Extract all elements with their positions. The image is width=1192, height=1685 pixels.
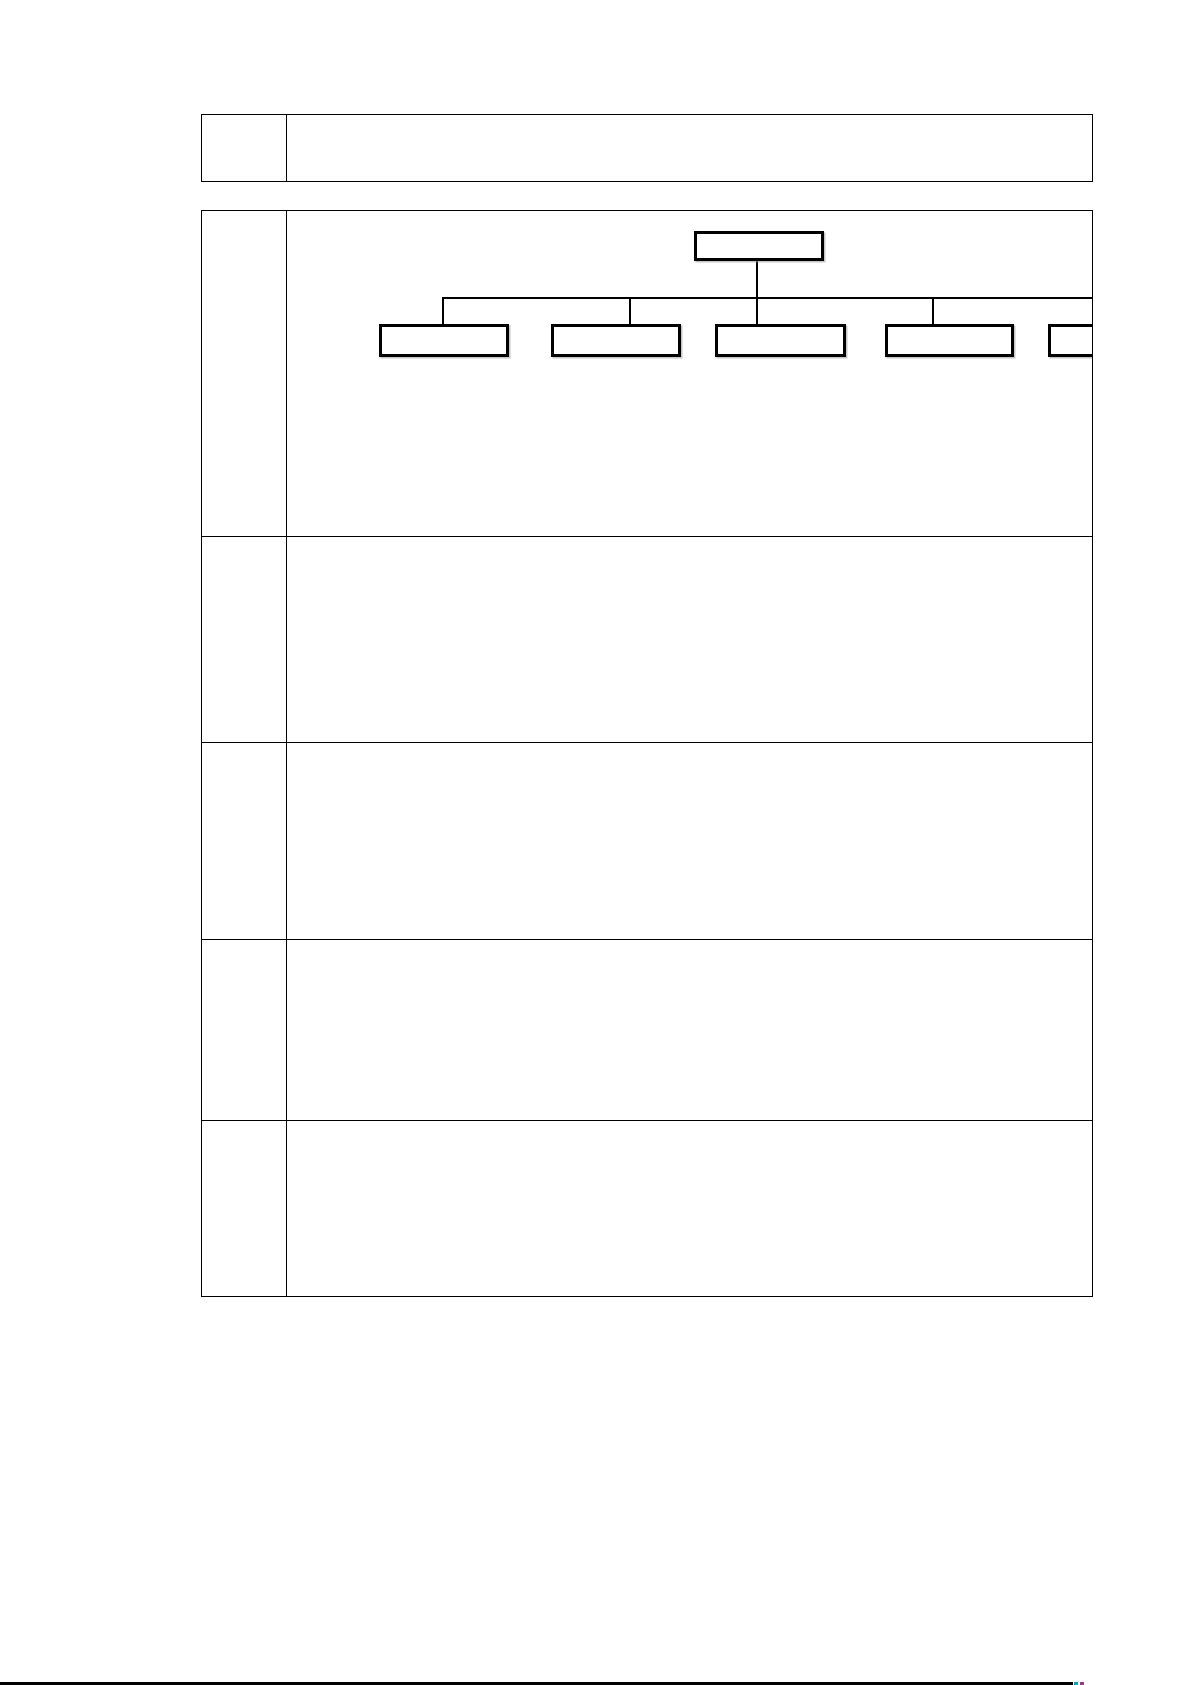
table-cell [202, 940, 287, 1120]
org-chart-drop-connector [442, 297, 444, 325]
table-row [202, 115, 1092, 181]
org-chart-child-box [715, 324, 846, 357]
header-table [201, 114, 1093, 182]
org-chart-drop-connector [756, 297, 758, 325]
table-cell [202, 743, 287, 939]
org-chart-child-box [1048, 324, 1092, 357]
table-cell [202, 1121, 287, 1296]
document-page [0, 0, 1192, 1685]
table-cell [202, 211, 287, 536]
table-cell [287, 537, 1092, 742]
table-cell [202, 537, 287, 742]
org-chart [287, 211, 1092, 536]
org-chart-child-box [885, 324, 1014, 357]
main-table [201, 210, 1093, 1297]
table-cell [287, 211, 1092, 536]
org-chart-stem-connector [756, 261, 758, 299]
table-row [202, 537, 1092, 743]
org-chart-drop-connector [932, 297, 934, 325]
org-chart-root-box [694, 231, 824, 261]
table-cell [287, 115, 1092, 181]
org-chart-child-box [379, 324, 509, 357]
org-chart-rail-connector [442, 297, 1092, 299]
org-chart-drop-connector [629, 297, 631, 325]
table-row [202, 1121, 1092, 1296]
org-chart-child-box [551, 324, 681, 357]
table-cell [202, 115, 287, 181]
table-cell [287, 940, 1092, 1120]
table-cell [287, 1121, 1092, 1296]
table-cell [287, 743, 1092, 939]
table-row [202, 743, 1092, 940]
table-row [202, 211, 1092, 537]
table-row [202, 940, 1092, 1121]
